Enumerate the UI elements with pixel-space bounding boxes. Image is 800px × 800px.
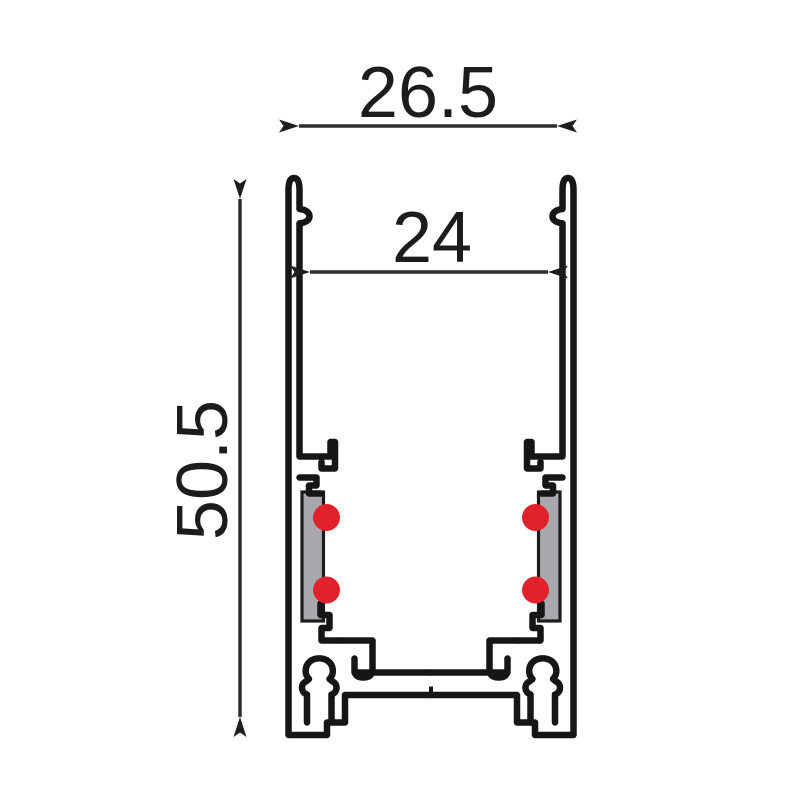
dimension-inner-width: 24 [310,198,548,278]
drawing-canvas: 26.5 24 50.5 [0,0,800,800]
dimension-height: 50.5 [163,199,243,717]
profile-technical-drawing: 26.5 24 50.5 [0,0,800,800]
dimension-outer-width-label: 26.5 [358,53,498,133]
dimension-height-label: 50.5 [163,400,243,540]
dimension-inner-width-label: 24 [392,198,472,278]
dimension-outer-width: 26.5 [299,53,557,133]
